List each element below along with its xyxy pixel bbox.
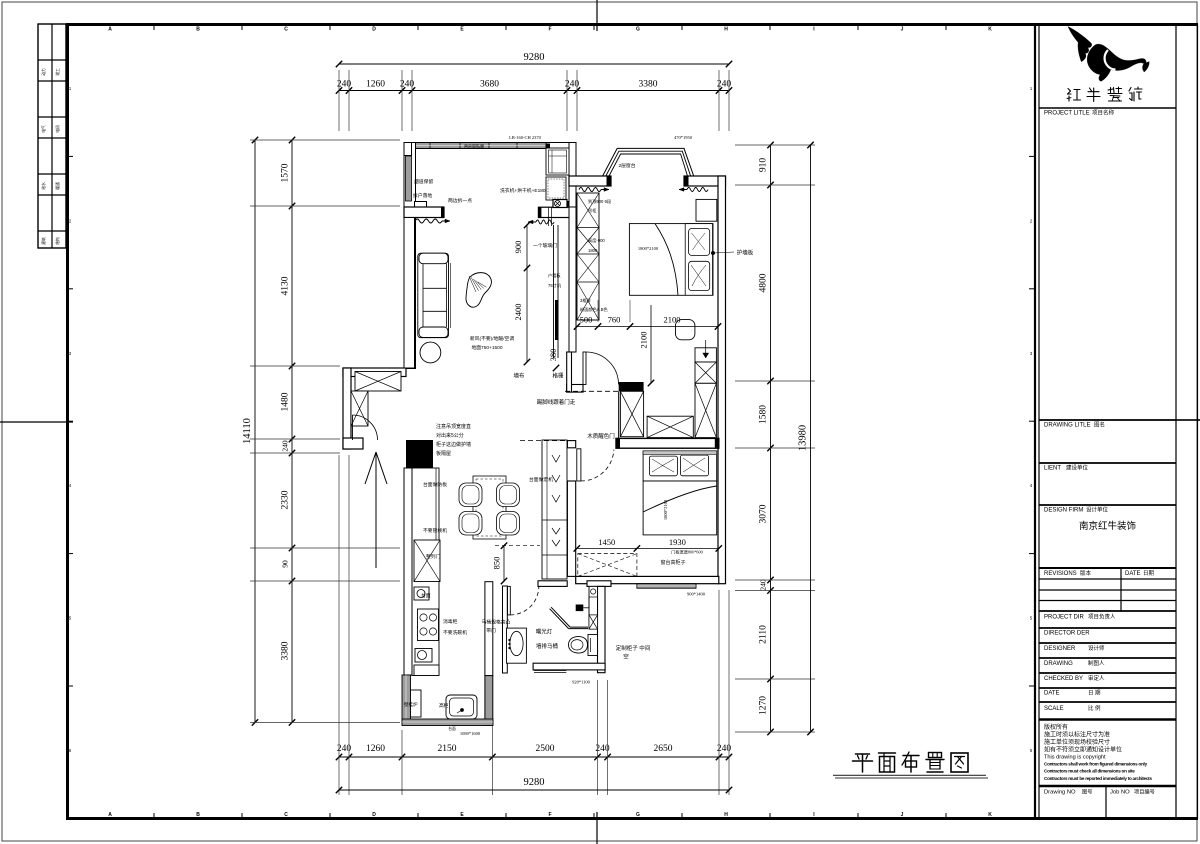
- svg-text:I: I: [813, 27, 815, 33]
- svg-text:DRAWING: DRAWING: [1044, 661, 1073, 667]
- svg-text:F: F: [548, 812, 551, 818]
- svg-text:A: A: [108, 27, 112, 33]
- svg-text:烟道保留: 烟道保留: [414, 178, 433, 185]
- svg-text:5: 5: [69, 616, 72, 621]
- svg-text:台面做防板: 台面做防板: [423, 481, 447, 488]
- svg-text:格栅: 格栅: [552, 372, 564, 380]
- svg-text:如有不符须立即通知设计单位: 如有不符须立即通知设计单位: [1044, 746, 1122, 754]
- svg-text:B: B: [196, 812, 200, 818]
- svg-text:曙光灯: 曙光灯: [536, 628, 553, 636]
- svg-text:D: D: [372, 812, 376, 818]
- svg-text:2400: 2400: [513, 304, 523, 321]
- svg-text:2: 2: [1030, 218, 1033, 223]
- svg-text:910: 910: [759, 158, 769, 173]
- svg-text:1: 1: [69, 86, 72, 91]
- svg-text:给水: 给水: [41, 182, 46, 190]
- svg-text:竣工: 竣工: [55, 68, 60, 76]
- svg-text:1260: 1260: [366, 744, 385, 754]
- svg-text:SCALE: SCALE: [1044, 706, 1064, 712]
- svg-text:2500: 2500: [536, 744, 555, 754]
- svg-text:电讯: 电讯: [55, 125, 60, 133]
- svg-text:高柜: 高柜: [439, 702, 449, 709]
- svg-text:9280: 9280: [524, 777, 545, 788]
- svg-text:3格屏: 3格屏: [580, 297, 591, 304]
- svg-text:240: 240: [759, 579, 768, 591]
- svg-text:1570: 1570: [281, 163, 291, 182]
- svg-text:比 例: 比 例: [1088, 704, 1101, 712]
- svg-text:380: 380: [548, 349, 558, 362]
- svg-text:920*1100: 920*1100: [572, 680, 591, 685]
- svg-text:4: 4: [1030, 483, 1033, 488]
- svg-text:粉面颜色A.B色: 粉面颜色A.B色: [580, 306, 608, 313]
- svg-text:G: G: [636, 812, 640, 818]
- svg-text:F: F: [548, 27, 551, 33]
- svg-text:带门: 带门: [486, 627, 496, 634]
- svg-text:Contractors must check all dim: Contractors must check all dimensions on…: [1044, 769, 1135, 774]
- svg-text:DRAWING LITLE: DRAWING LITLE: [1044, 423, 1090, 429]
- svg-text:审定人: 审定人: [1088, 674, 1105, 682]
- svg-text:设计师: 设计师: [1088, 644, 1105, 652]
- svg-text:整列门: 整列门: [426, 553, 441, 560]
- svg-text:PROJECT LITLE: PROJECT LITLE: [1044, 111, 1090, 117]
- svg-text:Contractors must be reported i: Contractors must be reported immediately…: [1044, 776, 1152, 781]
- svg-text:一个玻璃门: 一个玻璃门: [533, 242, 557, 249]
- svg-text:LIENT: LIENT: [1044, 466, 1061, 472]
- svg-text:1080*1600: 1080*1600: [460, 731, 481, 736]
- svg-text:D: D: [372, 27, 376, 33]
- svg-text:2100: 2100: [664, 315, 681, 325]
- svg-text:4130: 4130: [281, 276, 291, 295]
- svg-text:高度-900: 高度-900: [588, 237, 605, 244]
- svg-text:DATE: DATE: [1125, 571, 1141, 577]
- svg-text:木质醒色门: 木质醒色门: [587, 432, 615, 440]
- svg-text:2650: 2650: [654, 744, 673, 754]
- svg-text:C: C: [284, 812, 288, 818]
- svg-text:DIRECTOR DER: DIRECTOR DER: [1044, 631, 1090, 637]
- svg-text:900: 900: [513, 241, 523, 254]
- svg-text:J: J: [901, 27, 904, 33]
- svg-text:窗台高柜子: 窗台高柜子: [660, 559, 685, 566]
- svg-text:新风(不要)/地暖/空调: 新风(不要)/地暖/空调: [470, 335, 514, 342]
- svg-text:6: 6: [69, 748, 72, 753]
- svg-text:拆户落地: 拆户落地: [413, 192, 432, 199]
- svg-text:1260: 1260: [366, 80, 385, 90]
- svg-text:2150: 2150: [438, 744, 457, 754]
- svg-text:3: 3: [1030, 351, 1033, 356]
- svg-text:版本: 版本: [1080, 569, 1092, 577]
- svg-text:台面: 台面: [421, 592, 431, 599]
- svg-text:2330: 2330: [281, 490, 291, 509]
- svg-text:14110: 14110: [242, 418, 253, 444]
- svg-text:C: C: [284, 27, 288, 33]
- svg-text:1580: 1580: [759, 405, 769, 424]
- svg-text:6: 6: [1030, 748, 1033, 753]
- svg-text:3070: 3070: [759, 504, 769, 523]
- svg-text:Drawing NO: Drawing NO: [1044, 790, 1076, 796]
- svg-text:空: 空: [623, 653, 629, 661]
- svg-text:1800*2100: 1800*2100: [638, 246, 659, 251]
- svg-text:注意吊顶宽度直: 注意吊顶宽度直: [436, 423, 471, 430]
- svg-text:消毒柜: 消毒柜: [443, 618, 458, 625]
- svg-text:门板宽度800*600: 门板宽度800*600: [671, 549, 702, 556]
- svg-text:护墙板: 护墙板: [737, 249, 754, 257]
- svg-text:施工时须以标注尺寸为准: 施工时须以标注尺寸为准: [1044, 731, 1110, 739]
- svg-text:G: G: [636, 27, 640, 33]
- svg-text:500: 500: [580, 315, 593, 325]
- svg-text:建设单位: 建设单位: [1066, 464, 1089, 472]
- svg-text:日期: 日期: [1143, 570, 1155, 577]
- svg-text:图号: 图号: [1082, 789, 1092, 796]
- svg-text:Contractors shall work from fi: Contractors shall work from figured dime…: [1044, 762, 1148, 767]
- svg-text:吊柜: 吊柜: [588, 207, 596, 214]
- svg-text:H: H: [724, 812, 728, 818]
- svg-text:4: 4: [69, 483, 72, 488]
- svg-text:3380: 3380: [281, 641, 291, 660]
- svg-text:动力: 动力: [41, 68, 46, 76]
- svg-text:4800: 4800: [759, 273, 769, 292]
- svg-text:90: 90: [281, 560, 290, 568]
- svg-text:壁挂炉: 壁挂炉: [404, 701, 418, 708]
- svg-text:施工单位须现场校验尺寸: 施工单位须现场校验尺寸: [1044, 738, 1110, 746]
- svg-text:不要管线机: 不要管线机: [423, 527, 447, 534]
- svg-text:5: 5: [1030, 616, 1033, 621]
- svg-text:2层窗台: 2层窗台: [618, 162, 635, 169]
- svg-text:DESIGNER: DESIGNER: [1044, 646, 1076, 652]
- svg-text:洗衣机+烘干机+E180: 洗衣机+烘干机+E180: [500, 187, 546, 194]
- svg-text:地面750+1500: 地面750+1500: [471, 344, 502, 351]
- svg-text:两边拆一点: 两边拆一点: [448, 197, 472, 204]
- svg-text:760: 760: [608, 315, 621, 325]
- svg-text:定制柜子 中间: 定制柜子 中间: [616, 644, 651, 652]
- svg-text:电气: 电气: [41, 125, 46, 133]
- svg-text:13980: 13980: [798, 425, 809, 451]
- svg-text:项目编号: 项目编号: [1134, 788, 1155, 796]
- svg-text:3: 3: [69, 351, 72, 356]
- svg-text:J: J: [901, 812, 904, 818]
- svg-text:项目名称: 项目名称: [1092, 109, 1115, 117]
- svg-text:1450: 1450: [598, 537, 615, 547]
- svg-text:H: H: [724, 27, 728, 33]
- svg-text:墙排马桶: 墙排马桶: [536, 642, 559, 650]
- svg-text:对出来5公分: 对出来5公分: [436, 432, 464, 439]
- svg-text:柜子这边做护墙: 柜子这边做护墙: [436, 441, 471, 448]
- svg-text:PROJECT DIR: PROJECT DIR: [1044, 615, 1085, 621]
- svg-text:马桶规格高凸: 马桶规格高凸: [482, 619, 511, 626]
- svg-text:项目负责人: 项目负责人: [1088, 613, 1116, 621]
- svg-text:K: K: [988, 812, 992, 818]
- svg-text:REVISIONS: REVISIONS: [1044, 571, 1077, 577]
- svg-text:两房窗贴膜: 两房窗贴膜: [464, 143, 484, 149]
- svg-text:2110: 2110: [759, 625, 769, 644]
- svg-text:K: K: [988, 27, 992, 33]
- svg-text:1930: 1930: [669, 537, 686, 547]
- svg-text:台面做宏机: 台面做宏机: [529, 476, 553, 483]
- svg-text:建筑: 建筑: [41, 237, 46, 245]
- svg-text:9280: 9280: [524, 52, 545, 63]
- svg-text:E: E: [460, 27, 464, 33]
- svg-text:DESIGN FIRM: DESIGN FIRM: [1044, 508, 1083, 514]
- svg-text:设计单位: 设计单位: [1086, 506, 1109, 514]
- svg-text:900*1400: 900*1400: [687, 592, 706, 597]
- svg-text:到顶900 9段: 到顶900 9段: [588, 198, 612, 205]
- svg-text:1270: 1270: [759, 696, 769, 715]
- svg-text:2100: 2100: [639, 332, 649, 349]
- svg-text:75寸机: 75寸机: [548, 282, 562, 289]
- svg-text:1800*2100: 1800*2100: [663, 499, 668, 520]
- svg-text:1480: 1480: [281, 392, 291, 411]
- svg-text:不要洗碗机: 不要洗碗机: [443, 629, 467, 636]
- svg-text:暖通: 暖通: [55, 182, 60, 190]
- svg-text:3680: 3680: [480, 80, 499, 90]
- svg-text:A: A: [108, 812, 112, 818]
- svg-text:2: 2: [69, 218, 72, 223]
- svg-text:户墙板: 户墙板: [548, 272, 561, 279]
- svg-text:结构: 结构: [55, 237, 60, 245]
- svg-text:3380: 3380: [639, 80, 658, 90]
- svg-text:CHECKED BY: CHECKED BY: [1044, 676, 1083, 682]
- svg-text:台面: 台面: [448, 726, 456, 731]
- svg-text:LB-160-CH 2370: LB-160-CH 2370: [509, 135, 542, 140]
- svg-text:1800: 1800: [588, 248, 598, 253]
- svg-text:470*1950: 470*1950: [674, 135, 693, 140]
- svg-text:1: 1: [1030, 86, 1033, 91]
- svg-text:踢脚线跟着门走: 踢脚线跟着门走: [537, 398, 576, 406]
- svg-text:版权所有: 版权所有: [1044, 723, 1068, 731]
- svg-text:图名: 图名: [1094, 421, 1105, 429]
- svg-text:850: 850: [492, 557, 502, 570]
- svg-text:DATE: DATE: [1044, 691, 1060, 697]
- svg-text:日 期: 日 期: [1088, 690, 1101, 697]
- svg-text:This drawing is copyright: This drawing is copyright: [1044, 755, 1106, 761]
- svg-text:南京红牛装饰: 南京红牛装饰: [1079, 520, 1136, 532]
- svg-text:板隔屋: 板隔屋: [436, 450, 451, 457]
- svg-text:B: B: [196, 27, 200, 33]
- svg-text:Job NO: Job NO: [1110, 790, 1130, 796]
- svg-text:墙布: 墙布: [513, 372, 525, 380]
- svg-text:制图人: 制图人: [1088, 659, 1105, 667]
- svg-text:240: 240: [281, 440, 290, 452]
